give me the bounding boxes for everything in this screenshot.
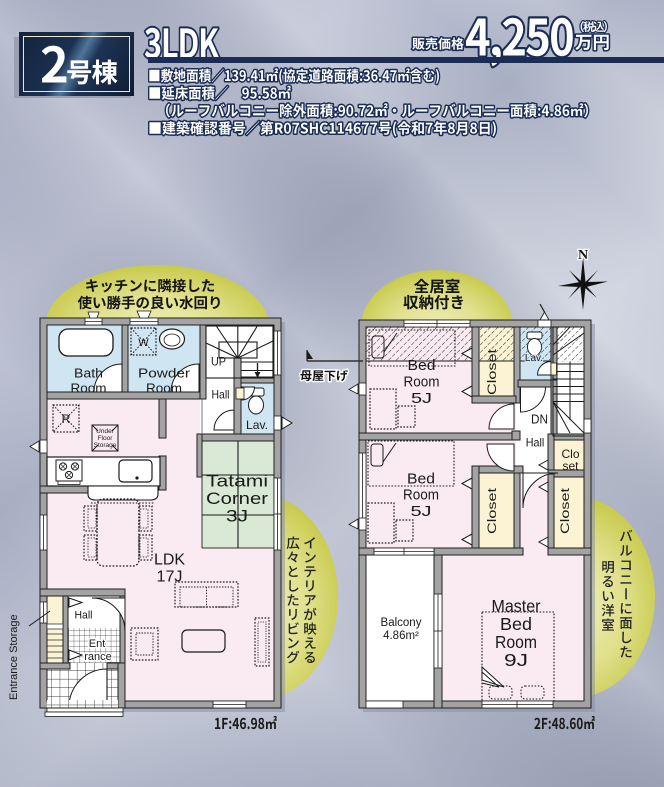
svg-text:Entrance Storage: Entrance Storage [8, 614, 20, 700]
svg-text:Floor: Floor [98, 435, 114, 442]
svg-text:Master: Master [492, 596, 541, 616]
svg-text:Closet: Closet [487, 348, 499, 395]
svg-text:5J: 5J [411, 503, 432, 520]
svg-text:Bed: Bed [408, 357, 436, 374]
svg-text:Closet: Closet [487, 487, 499, 534]
svg-text:17J: 17J [157, 569, 183, 586]
svg-text:Lav.: Lav. [525, 353, 543, 364]
svg-text:Lav.: Lav. [246, 418, 268, 432]
svg-text:Tatami: Tatami [206, 472, 268, 491]
svg-text:Storage: Storage [94, 442, 117, 449]
svg-text:3J: 3J [226, 507, 248, 526]
svg-text:9J: 9J [504, 650, 528, 670]
svg-text:LDK: LDK [154, 552, 186, 569]
svg-text:Room: Room [146, 381, 182, 396]
svg-text:Bed: Bed [500, 614, 532, 634]
svg-text:Corner: Corner [206, 489, 268, 508]
svg-text:Ent: Ent [89, 638, 106, 650]
svg-text:Hall: Hall [526, 436, 545, 450]
svg-text:Powder: Powder [138, 366, 191, 381]
svg-text:R: R [62, 412, 71, 426]
svg-text:Room: Room [495, 632, 537, 652]
svg-text:Bed: Bed [407, 470, 435, 487]
svg-text:Hall: Hall [212, 388, 230, 402]
svg-text:DN: DN [531, 413, 548, 427]
svg-text:Bath: Bath [74, 366, 103, 381]
svg-text:rance: rance [84, 651, 112, 663]
svg-text:Under: Under [96, 428, 115, 435]
svg-text:Closet: Closet [560, 487, 572, 534]
svg-text:4.86m²: 4.86m² [383, 630, 419, 642]
svg-text:Balcony: Balcony [381, 617, 422, 629]
svg-text:Room: Room [403, 487, 439, 504]
svg-text:Hall: Hall [75, 610, 93, 622]
svg-text:W: W [138, 337, 149, 349]
svg-text:set: set [563, 459, 580, 473]
svg-text:5J: 5J [411, 390, 432, 407]
svg-text:Room: Room [71, 381, 107, 396]
svg-text:UP: UP [211, 355, 226, 369]
svg-text:N: N [578, 248, 588, 263]
svg-text:Room: Room [404, 374, 440, 391]
